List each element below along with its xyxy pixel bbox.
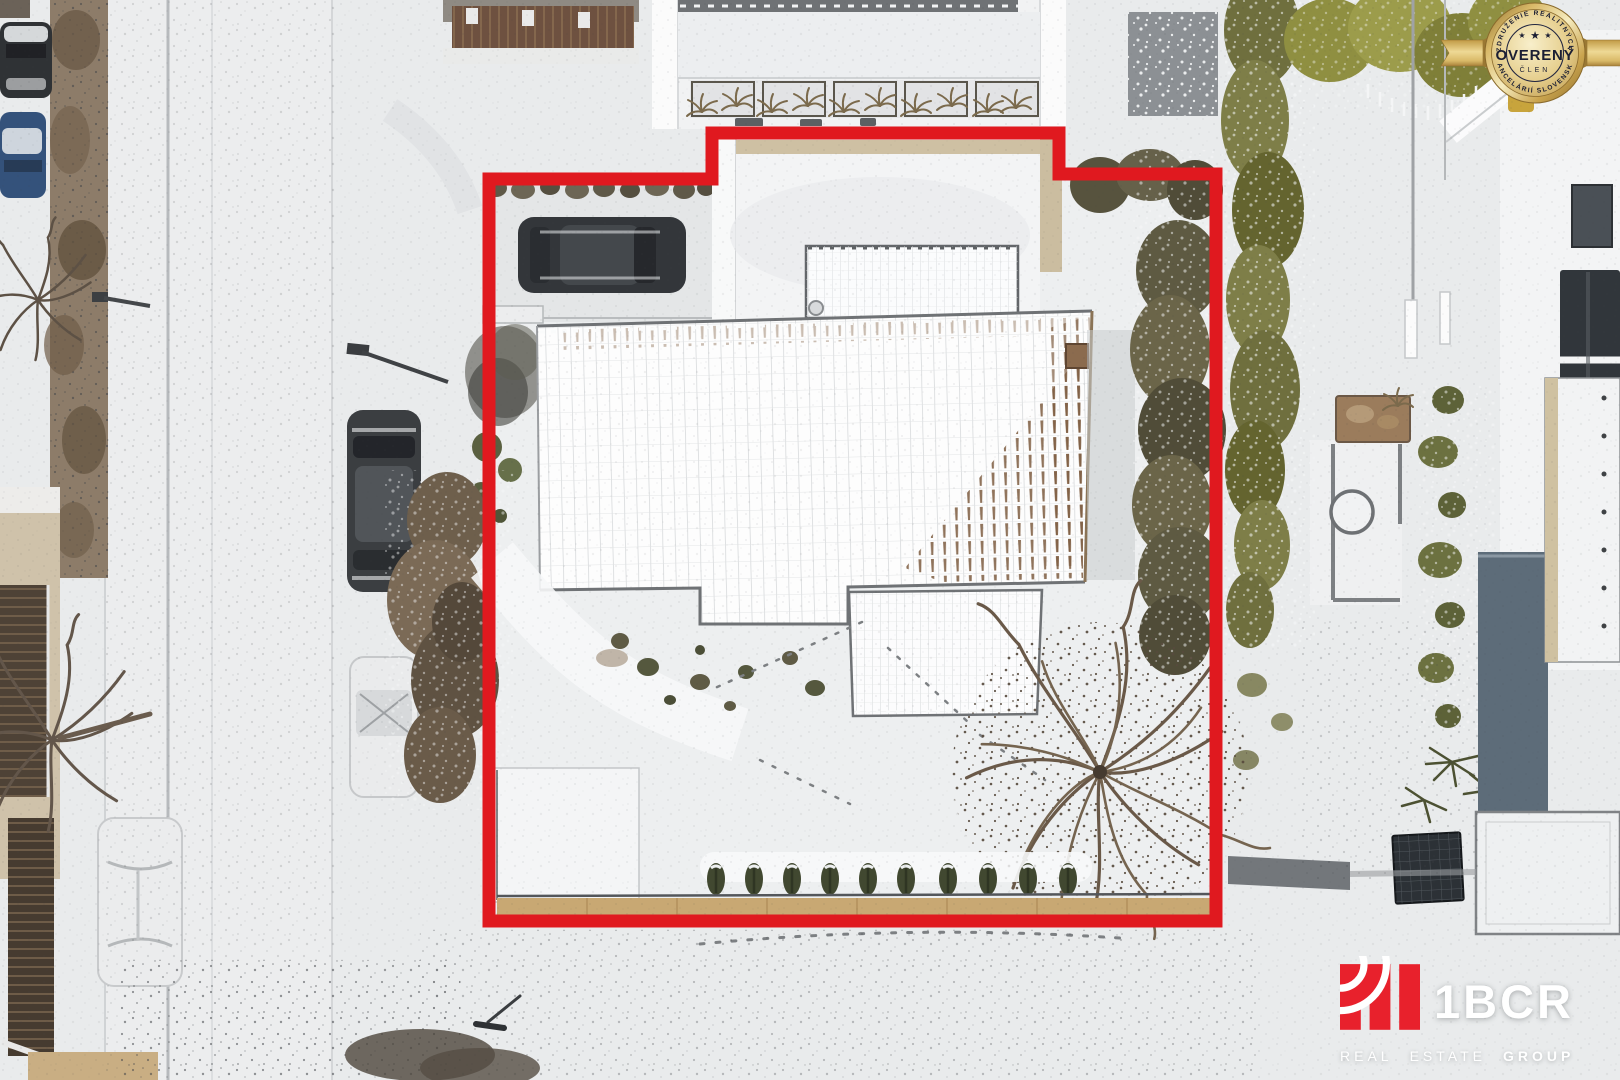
badge-star-icon: ★ bbox=[1518, 31, 1525, 40]
logo-wordmark: 1BCR bbox=[1434, 978, 1574, 1025]
badge-subtitle: ČLEN bbox=[1520, 65, 1551, 74]
winter-aerial-scene bbox=[0, 0, 1620, 1080]
badge-medal: ZDRUŽENIE REALITNÝCH KANCELÁRIÍ SLOVENSK… bbox=[1485, 3, 1585, 103]
verified-badge: ZDRUŽENIE REALITNÝCH KANCELÁRIÍ SLOVENSK… bbox=[1440, 0, 1620, 109]
logo-icon bbox=[1340, 956, 1420, 1038]
badge-star-icon: ★ bbox=[1530, 29, 1540, 42]
badge-star-icon: ★ bbox=[1544, 31, 1551, 40]
logo-word-estate: ESTATE bbox=[1410, 1048, 1486, 1064]
logo-word-group: GROUP bbox=[1503, 1048, 1574, 1064]
company-logo: 1BCR REAL ESTATE GROUP bbox=[1340, 956, 1574, 1064]
path-noise bbox=[1300, 620, 1480, 880]
logo-word-real: REAL bbox=[1340, 1048, 1393, 1064]
logo-tagline: REAL ESTATE GROUP bbox=[1340, 1048, 1574, 1064]
road-noise bbox=[105, 0, 335, 1080]
badge-svg: ZDRUŽENIE REALITNÝCH KANCELÁRIÍ SLOVENSK… bbox=[1440, 0, 1620, 109]
aerial-property-photo: ZDRUŽENIE REALITNÝCH KANCELÁRIÍ SLOVENSK… bbox=[0, 0, 1620, 1080]
logo-mark bbox=[1340, 956, 1420, 1030]
badge-title: OVERENÝ bbox=[1496, 46, 1575, 64]
